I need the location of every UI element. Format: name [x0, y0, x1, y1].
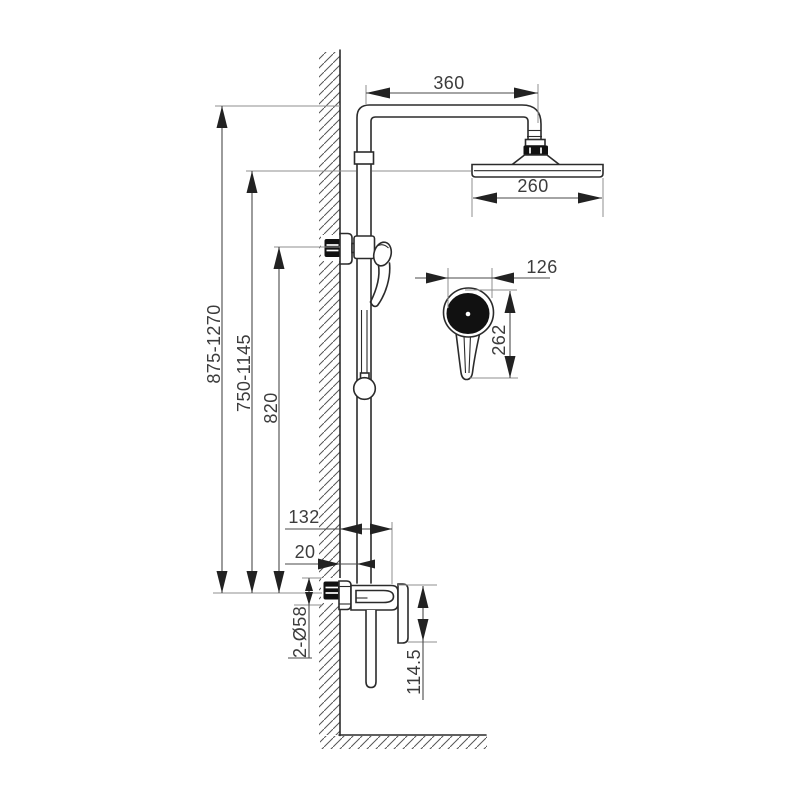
valve-escutcheon — [398, 584, 408, 643]
arrowhead-down-icon — [418, 619, 429, 641]
dimension-label-valve-height: 114.5 — [404, 649, 424, 695]
connector-nut — [524, 146, 548, 155]
arrowhead-down-icon — [274, 571, 285, 593]
wall-anchor-icon — [325, 240, 340, 257]
dimension-overhead-width: 260 — [473, 176, 602, 204]
dimension-label-hand-shower-height: 262 — [489, 324, 509, 355]
arrowhead-left-icon — [366, 88, 390, 99]
ball — [354, 378, 376, 400]
arrowhead-left-icon — [473, 193, 497, 204]
valve-down-lever — [366, 610, 376, 688]
union-nut — [526, 140, 546, 147]
dimension-label-riser-height: 750-1145 — [234, 334, 254, 412]
arrowhead-up-icon — [274, 247, 285, 269]
arrowhead-right-icon — [370, 524, 392, 535]
floor — [320, 735, 487, 749]
arrowhead-up-icon — [217, 106, 228, 128]
dimension-label-bar-height: 820 — [261, 392, 281, 423]
arrowhead-left-icon — [426, 273, 448, 284]
dimension-arm-length: 360 — [366, 73, 538, 99]
drawing-svg: 360 260 126 262 875-1270 — [0, 0, 800, 800]
arrowhead-right-icon — [514, 88, 538, 99]
dimension-label-overall-height: 875-1270 — [204, 304, 224, 383]
overhead-shower — [472, 131, 603, 178]
dimension-label-wall-offset: 20 — [295, 542, 316, 562]
hand-shower-hooked — [371, 240, 394, 306]
arrowhead-right-icon — [492, 273, 514, 284]
shower-installation-drawing: 360 260 126 262 875-1270 — [0, 0, 800, 800]
dimension-label-valve-projection: 132 — [288, 507, 319, 527]
arrowhead-right-icon — [578, 193, 602, 204]
hand-shower-detail — [444, 288, 494, 380]
arrowhead-down-icon — [505, 356, 516, 378]
arrowhead-up-icon — [247, 171, 258, 193]
bracket-wall-plate — [340, 234, 352, 265]
dimension-label-mount-diameter: 2-Ø58 — [290, 606, 310, 658]
dimension-hand-shower-height: 262 — [489, 291, 516, 378]
wall-anchor-icon — [324, 582, 340, 599]
wall — [319, 50, 340, 736]
pipe-collar — [355, 152, 374, 164]
arrowhead-down-icon — [247, 571, 258, 593]
dimension-overall-height: 875-1270 — [204, 106, 228, 593]
dimension-riser-height: 750-1145 — [234, 171, 258, 593]
valve-lever — [356, 591, 394, 603]
arrowhead-down-icon — [305, 592, 313, 605]
hand-shower-center-dot — [466, 312, 471, 317]
arrowhead-up-icon — [505, 291, 516, 313]
dimension-label-arm-length: 360 — [433, 73, 464, 93]
dimension-bar-height: 820 — [261, 247, 285, 593]
hose — [362, 310, 368, 375]
dimension-label-overhead-width: 260 — [517, 176, 548, 196]
dimension-mount-diameter: 2-Ø58 — [288, 578, 313, 658]
arrowhead-up-icon — [418, 586, 429, 608]
dimension-hand-shower-width: 126 — [415, 257, 558, 284]
arrowhead-left-icon — [357, 560, 375, 569]
arrowhead-up-icon — [305, 578, 313, 591]
valve-wall-plate — [339, 581, 351, 610]
dimension-label-hand-shower-width: 126 — [526, 257, 557, 277]
arrowhead-left-icon — [340, 524, 362, 535]
arrowhead-down-icon — [217, 571, 228, 593]
slider-block — [354, 236, 375, 259]
